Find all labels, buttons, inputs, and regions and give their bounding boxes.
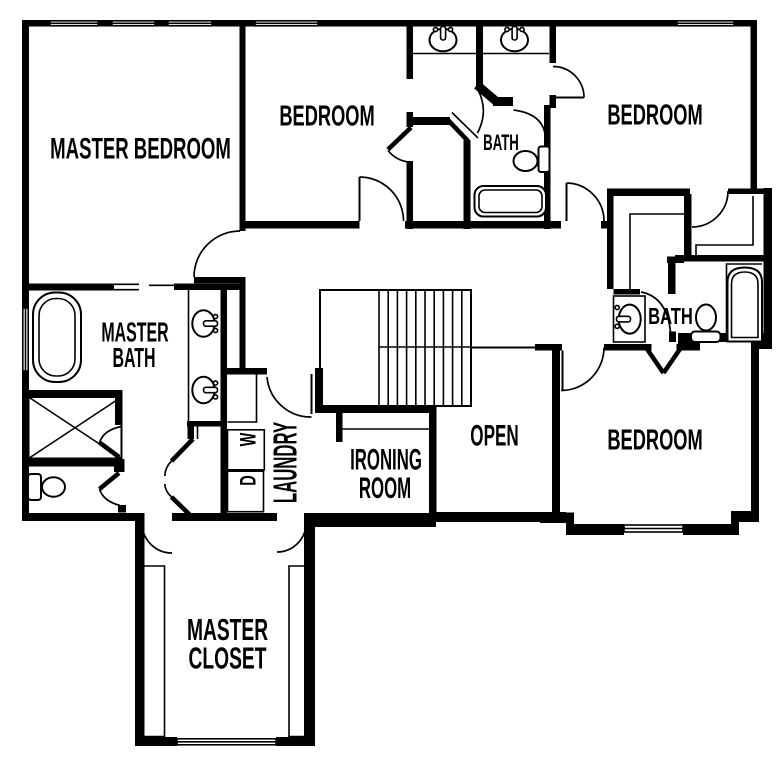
svg-text:CLOSET: CLOSET [189,642,267,676]
svg-text:BEDROOM: BEDROOM [607,99,702,131]
svg-text:MASTER BEDROOM: MASTER BEDROOM [50,132,231,166]
svg-text:W: W [235,432,260,446]
svg-text:LAUNDRY: LAUNDRY [266,422,304,503]
svg-text:D: D [235,475,260,485]
svg-text:ROOM: ROOM [359,472,411,505]
svg-text:BATH: BATH [112,341,155,373]
svg-text:OPEN: OPEN [470,420,518,453]
svg-text:BATH: BATH [648,304,693,329]
svg-text:BEDROOM: BEDROOM [279,100,374,132]
svg-text:BEDROOM: BEDROOM [607,424,702,456]
svg-text:BATH: BATH [483,131,519,155]
